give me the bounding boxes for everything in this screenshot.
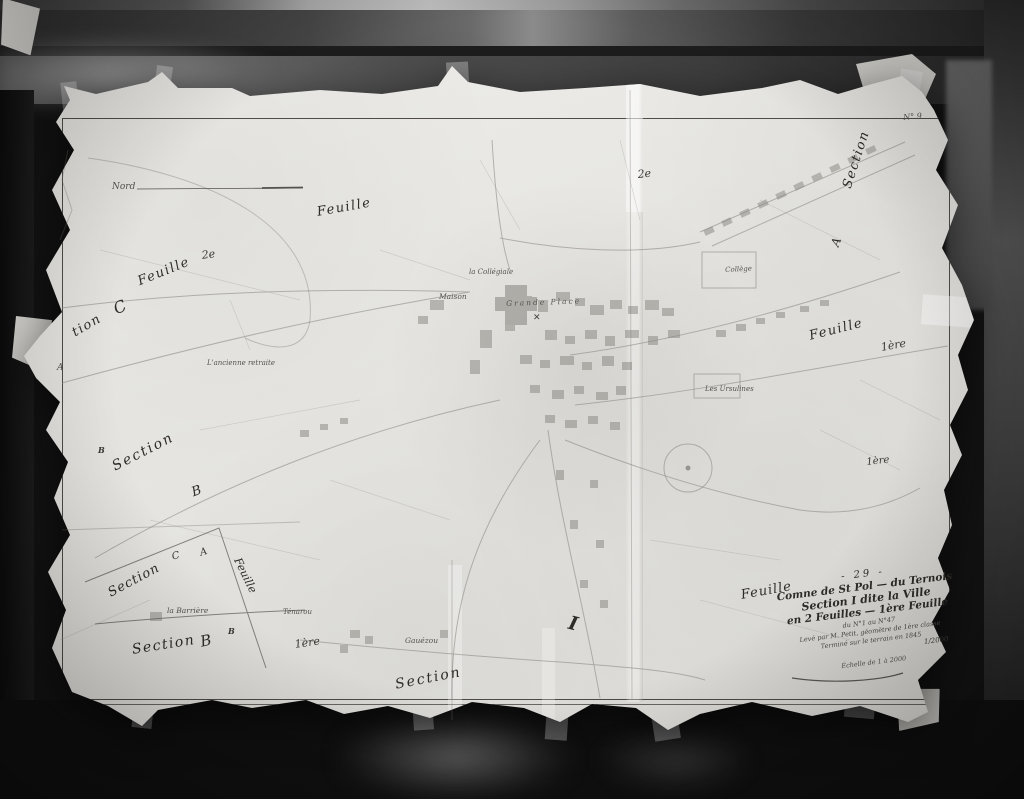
label-letter-b-inset: B: [228, 627, 235, 635]
label-2e-top-center: 2e: [637, 168, 652, 180]
label-college: Collège: [725, 266, 752, 274]
label-section-inset: Section: [106, 561, 162, 599]
label-nord: Nord: [112, 183, 135, 192]
label-feuille-nw: Feuille: [316, 196, 372, 218]
label-feuille-west: Feuille: [136, 255, 192, 288]
label-letter-b-left: B: [98, 446, 105, 454]
label-section-b-inset: Section: [131, 633, 196, 657]
label-tenarou: Ténarou: [283, 609, 312, 616]
label-1ere-right: 1ère: [866, 456, 890, 468]
label-letter-c-inset: C: [171, 551, 181, 563]
label-section-letter-i: I: [566, 614, 579, 635]
label-letter-a-inset: A: [199, 547, 209, 559]
label-maison: Maison: [439, 293, 467, 301]
windmill-cross-icon: ✕: [533, 314, 541, 323]
map-labels-layer: Nord Feuille 2e Feuille C tion A L'ancie…: [0, 0, 1024, 799]
label-section-a-right: Section: [841, 129, 872, 190]
label-section-bottom: Section: [394, 665, 463, 692]
label-section-b-left: Section: [110, 430, 176, 473]
label-1ere-east: 1ère: [880, 338, 907, 353]
label-letter-b-italic-left: B: [190, 484, 203, 499]
label-sheet-number: N° 9: [903, 112, 922, 122]
label-feuille-inset: Feuille: [232, 556, 258, 595]
photo-stage: Nord Feuille 2e Feuille C tion A L'ancie…: [0, 0, 1024, 799]
label-letter-a-right: A: [829, 236, 843, 248]
label-la-barriere: la Barrière: [167, 607, 208, 615]
label-la-collegiale: la Collégiale: [469, 269, 513, 276]
label-letter-b-inset-italic: B: [199, 633, 213, 650]
label-grande-place: Grande Place: [506, 297, 581, 307]
label-gauezou: Gauézou: [405, 637, 438, 645]
label-1ere-bottom-left: 1ère: [294, 635, 321, 649]
label-letter-c-west: C: [111, 298, 129, 318]
label-section-west-partial: tion: [70, 312, 104, 339]
label-feuille-east: Feuille: [808, 317, 865, 343]
label-2e-west: 2e: [201, 248, 216, 261]
label-les-ursulines: Les Ursulines: [705, 386, 754, 393]
label-ancienne-retraite: L'ancienne retraite: [207, 360, 275, 367]
label-letter-a-west: A: [57, 364, 64, 373]
